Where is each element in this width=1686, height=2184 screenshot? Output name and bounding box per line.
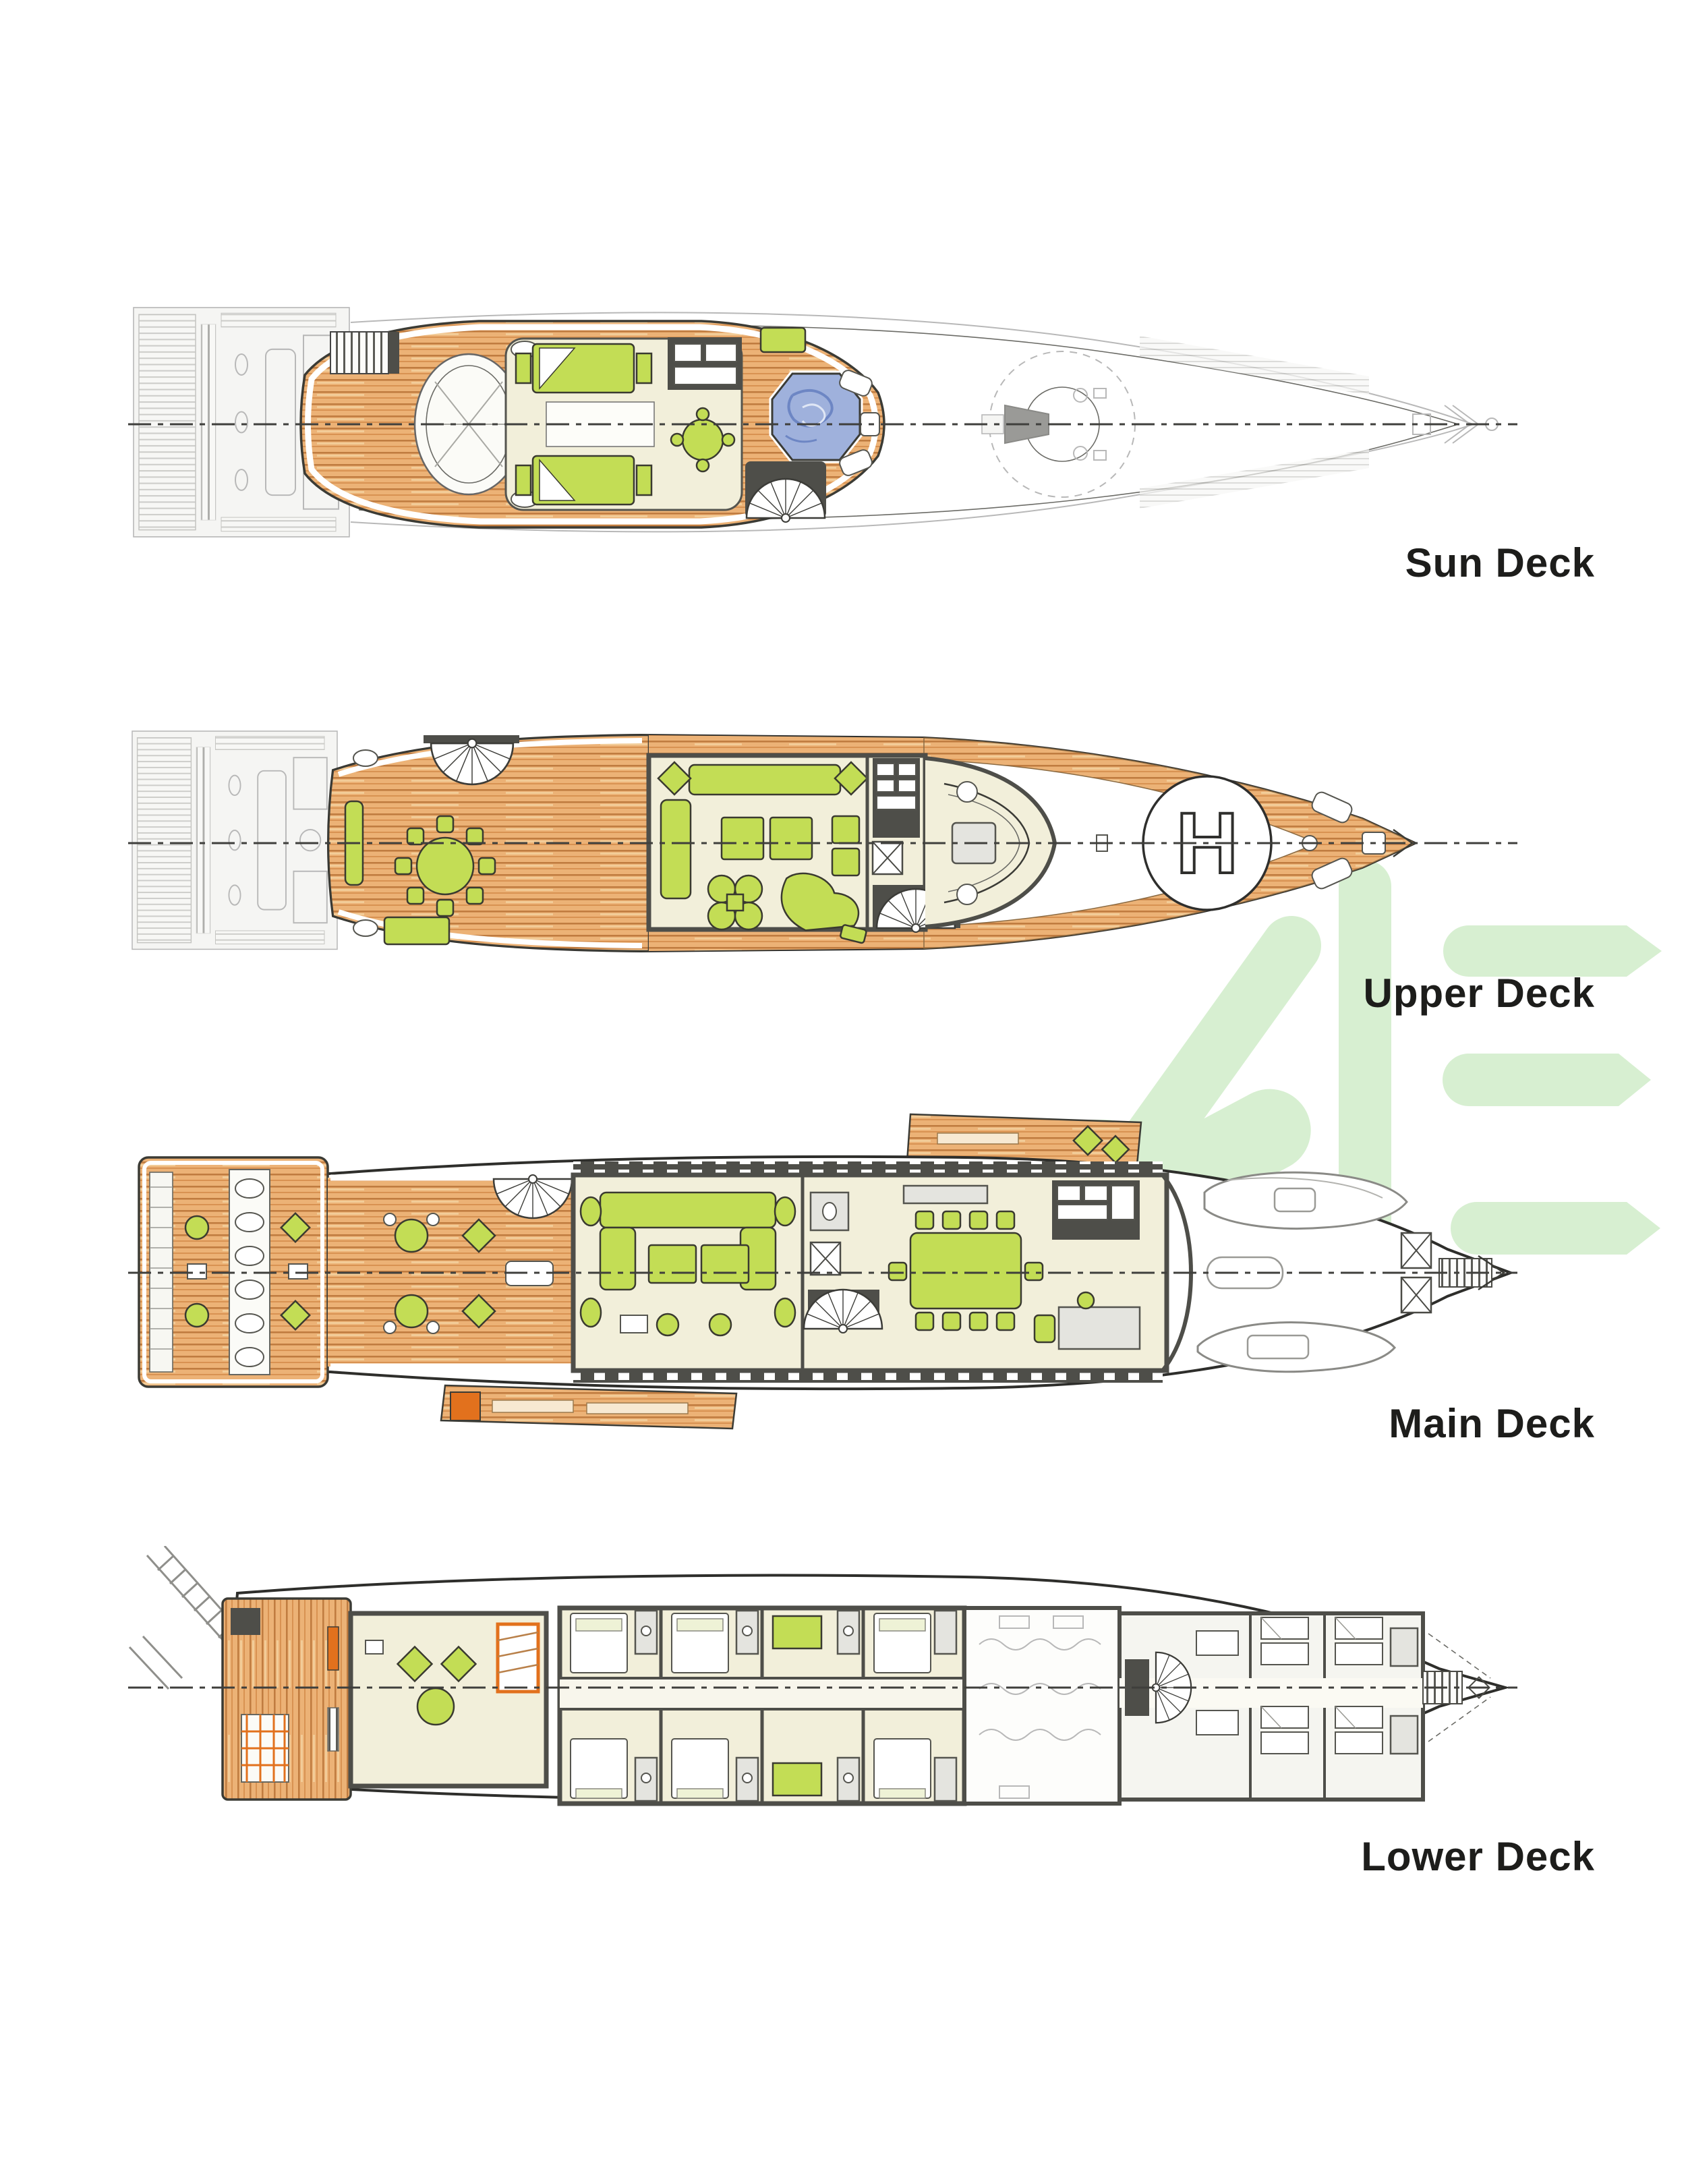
sunpad-small bbox=[761, 328, 805, 352]
crew-mess-table bbox=[1196, 1711, 1238, 1735]
elevator bbox=[811, 1242, 840, 1275]
deck-label-sun-deck: Sun Deck bbox=[1123, 540, 1595, 586]
watermark-e-arm bbox=[1443, 1054, 1651, 1106]
bar-pantry bbox=[668, 337, 742, 390]
sunpad bbox=[384, 917, 449, 944]
deck-plan-lower-deck bbox=[128, 1546, 1517, 1816]
dining-table bbox=[910, 1233, 1021, 1309]
spiral-staircase bbox=[745, 461, 826, 522]
guest-cabins bbox=[560, 1608, 964, 1804]
deck-label-lower-deck: Lower Deck bbox=[1123, 1833, 1595, 1880]
deck-label-main-deck: Main Deck bbox=[1123, 1400, 1595, 1447]
engine-room bbox=[964, 1608, 1120, 1804]
window-band bbox=[573, 1161, 1163, 1174]
sofa bbox=[689, 765, 840, 795]
deck-plan-sun-deck bbox=[128, 294, 1517, 550]
tender-boat bbox=[1204, 1172, 1407, 1228]
beach-club-deck bbox=[223, 1599, 351, 1800]
galley bbox=[1052, 1180, 1140, 1240]
ghost-superstructure-aft bbox=[132, 731, 337, 949]
side-terrace-bottom bbox=[441, 1385, 736, 1429]
orange-staircase bbox=[498, 1624, 538, 1692]
elevator bbox=[873, 842, 902, 874]
deck-plan-main-deck bbox=[128, 1113, 1517, 1430]
deck-plan-page: Sun Deck bbox=[0, 0, 1686, 2184]
cabin-sofa bbox=[773, 1763, 821, 1795]
crew-mess-table bbox=[1196, 1631, 1238, 1655]
sofa bbox=[661, 800, 691, 898]
crew-quarters bbox=[1120, 1613, 1423, 1800]
stair-rail bbox=[330, 332, 388, 374]
deck-plan-upper-deck: H bbox=[128, 716, 1517, 965]
lounge-gym bbox=[351, 1613, 546, 1786]
dining-table-round bbox=[417, 838, 473, 894]
deck-label-upper-deck: Upper Deck bbox=[1123, 970, 1595, 1016]
cabin-sofa bbox=[773, 1616, 821, 1648]
